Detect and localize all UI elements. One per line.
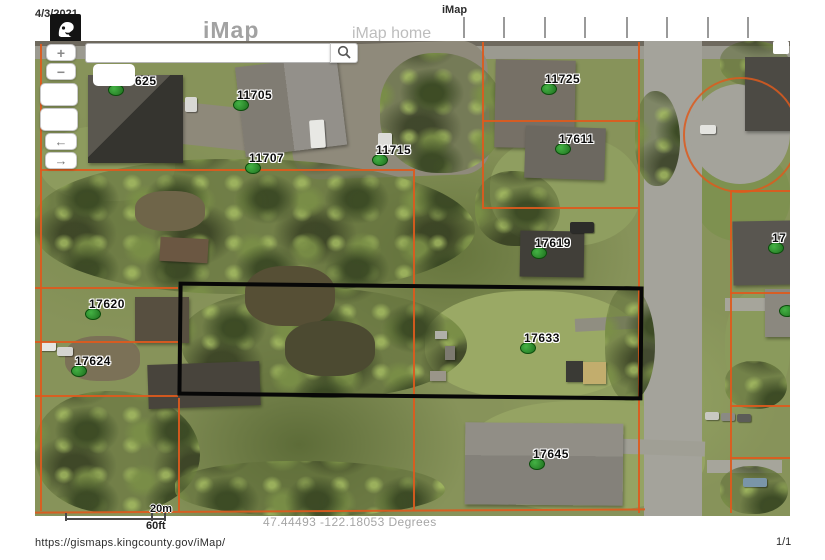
coordinate-readout: 47.44493 -122.18053 Degrees [263,515,437,529]
parcel-line-cul-de-sac [683,77,790,193]
house-roof [88,75,183,163]
map[interactable]: 20m 625117051170711715117251761117619176… [35,41,790,516]
vehicle [705,412,719,420]
parcel-address-label: 17620 [89,297,125,311]
parcel-address-label: 625 [135,74,157,88]
blank-label-box [773,41,789,54]
print-tick [503,17,505,38]
print-tick [707,17,709,38]
zoom-in-button[interactable]: + [46,44,76,61]
parcel-address-label: 11725 [545,72,580,86]
king-county-logo [50,14,81,43]
parcel-line [482,207,638,209]
parcel-address-label: 17619 [535,236,571,250]
print-tick [626,17,628,38]
vehicle [309,120,326,149]
print-tick [747,17,749,38]
parcel-point-icon [779,305,790,317]
print-page-title: iMap [442,4,467,16]
parcel-address-label: 11715 [376,143,411,157]
zoom-out-button[interactable]: − [46,63,76,80]
parcel-line [730,457,790,459]
vehicle [743,478,767,487]
tree-canopy [35,391,200,513]
tree-canopy [635,91,680,186]
shed [159,237,208,263]
print-tick [584,17,586,38]
vehicle [40,342,56,351]
search-icon [337,45,351,62]
vehicle [737,414,751,422]
tool-button-blank[interactable] [40,83,78,106]
scale-imperial-label: 60ft [146,520,166,532]
blank-label-box [93,64,135,86]
parcel-line [178,398,180,511]
print-url: https://gismaps.kingcounty.gov/iMap/ [35,537,225,549]
vehicle [721,413,735,421]
parcel-line [638,42,640,513]
parcel-address-label: 17645 [533,447,569,461]
parcel-line [35,395,178,397]
parcel-address-label: 17 [772,231,786,245]
print-tick [666,17,668,38]
parcel-line [730,405,790,407]
vehicle [185,97,197,112]
parcel-address-label: 17633 [524,331,560,345]
parcel-line [730,292,790,294]
selected-parcel-outline [177,282,643,401]
parcel-line [730,191,732,513]
parcel-address-label: 17611 [559,132,594,146]
vehicle [570,222,594,233]
print-page-number: 1/1 [776,536,791,548]
parcel-line [35,287,178,289]
next-extent-button[interactable]: → [45,152,77,169]
scale-metric-label: 20m [150,503,172,515]
parcel-address-label: 11705 [237,88,272,102]
print-tick [463,17,465,38]
house-roof [235,55,347,157]
parcel-address-label: 11707 [249,151,284,165]
dirt-patch [135,191,205,231]
parcel-line [482,42,484,207]
tool-button-blank[interactable] [40,108,78,131]
search-button[interactable] [330,43,358,63]
tree-canopy [175,461,445,516]
parcel-line [40,169,413,171]
parcel-address-label: 17624 [75,354,111,368]
parcel-line [35,341,178,343]
parcel-line [482,120,638,122]
print-tick [544,17,546,38]
app-title: iMap [203,17,259,44]
previous-extent-button[interactable]: ← [45,133,77,150]
search-input[interactable] [85,43,334,63]
tree-canopy [725,361,787,409]
vehicle [57,347,73,356]
scale-bar-tick [65,513,67,521]
